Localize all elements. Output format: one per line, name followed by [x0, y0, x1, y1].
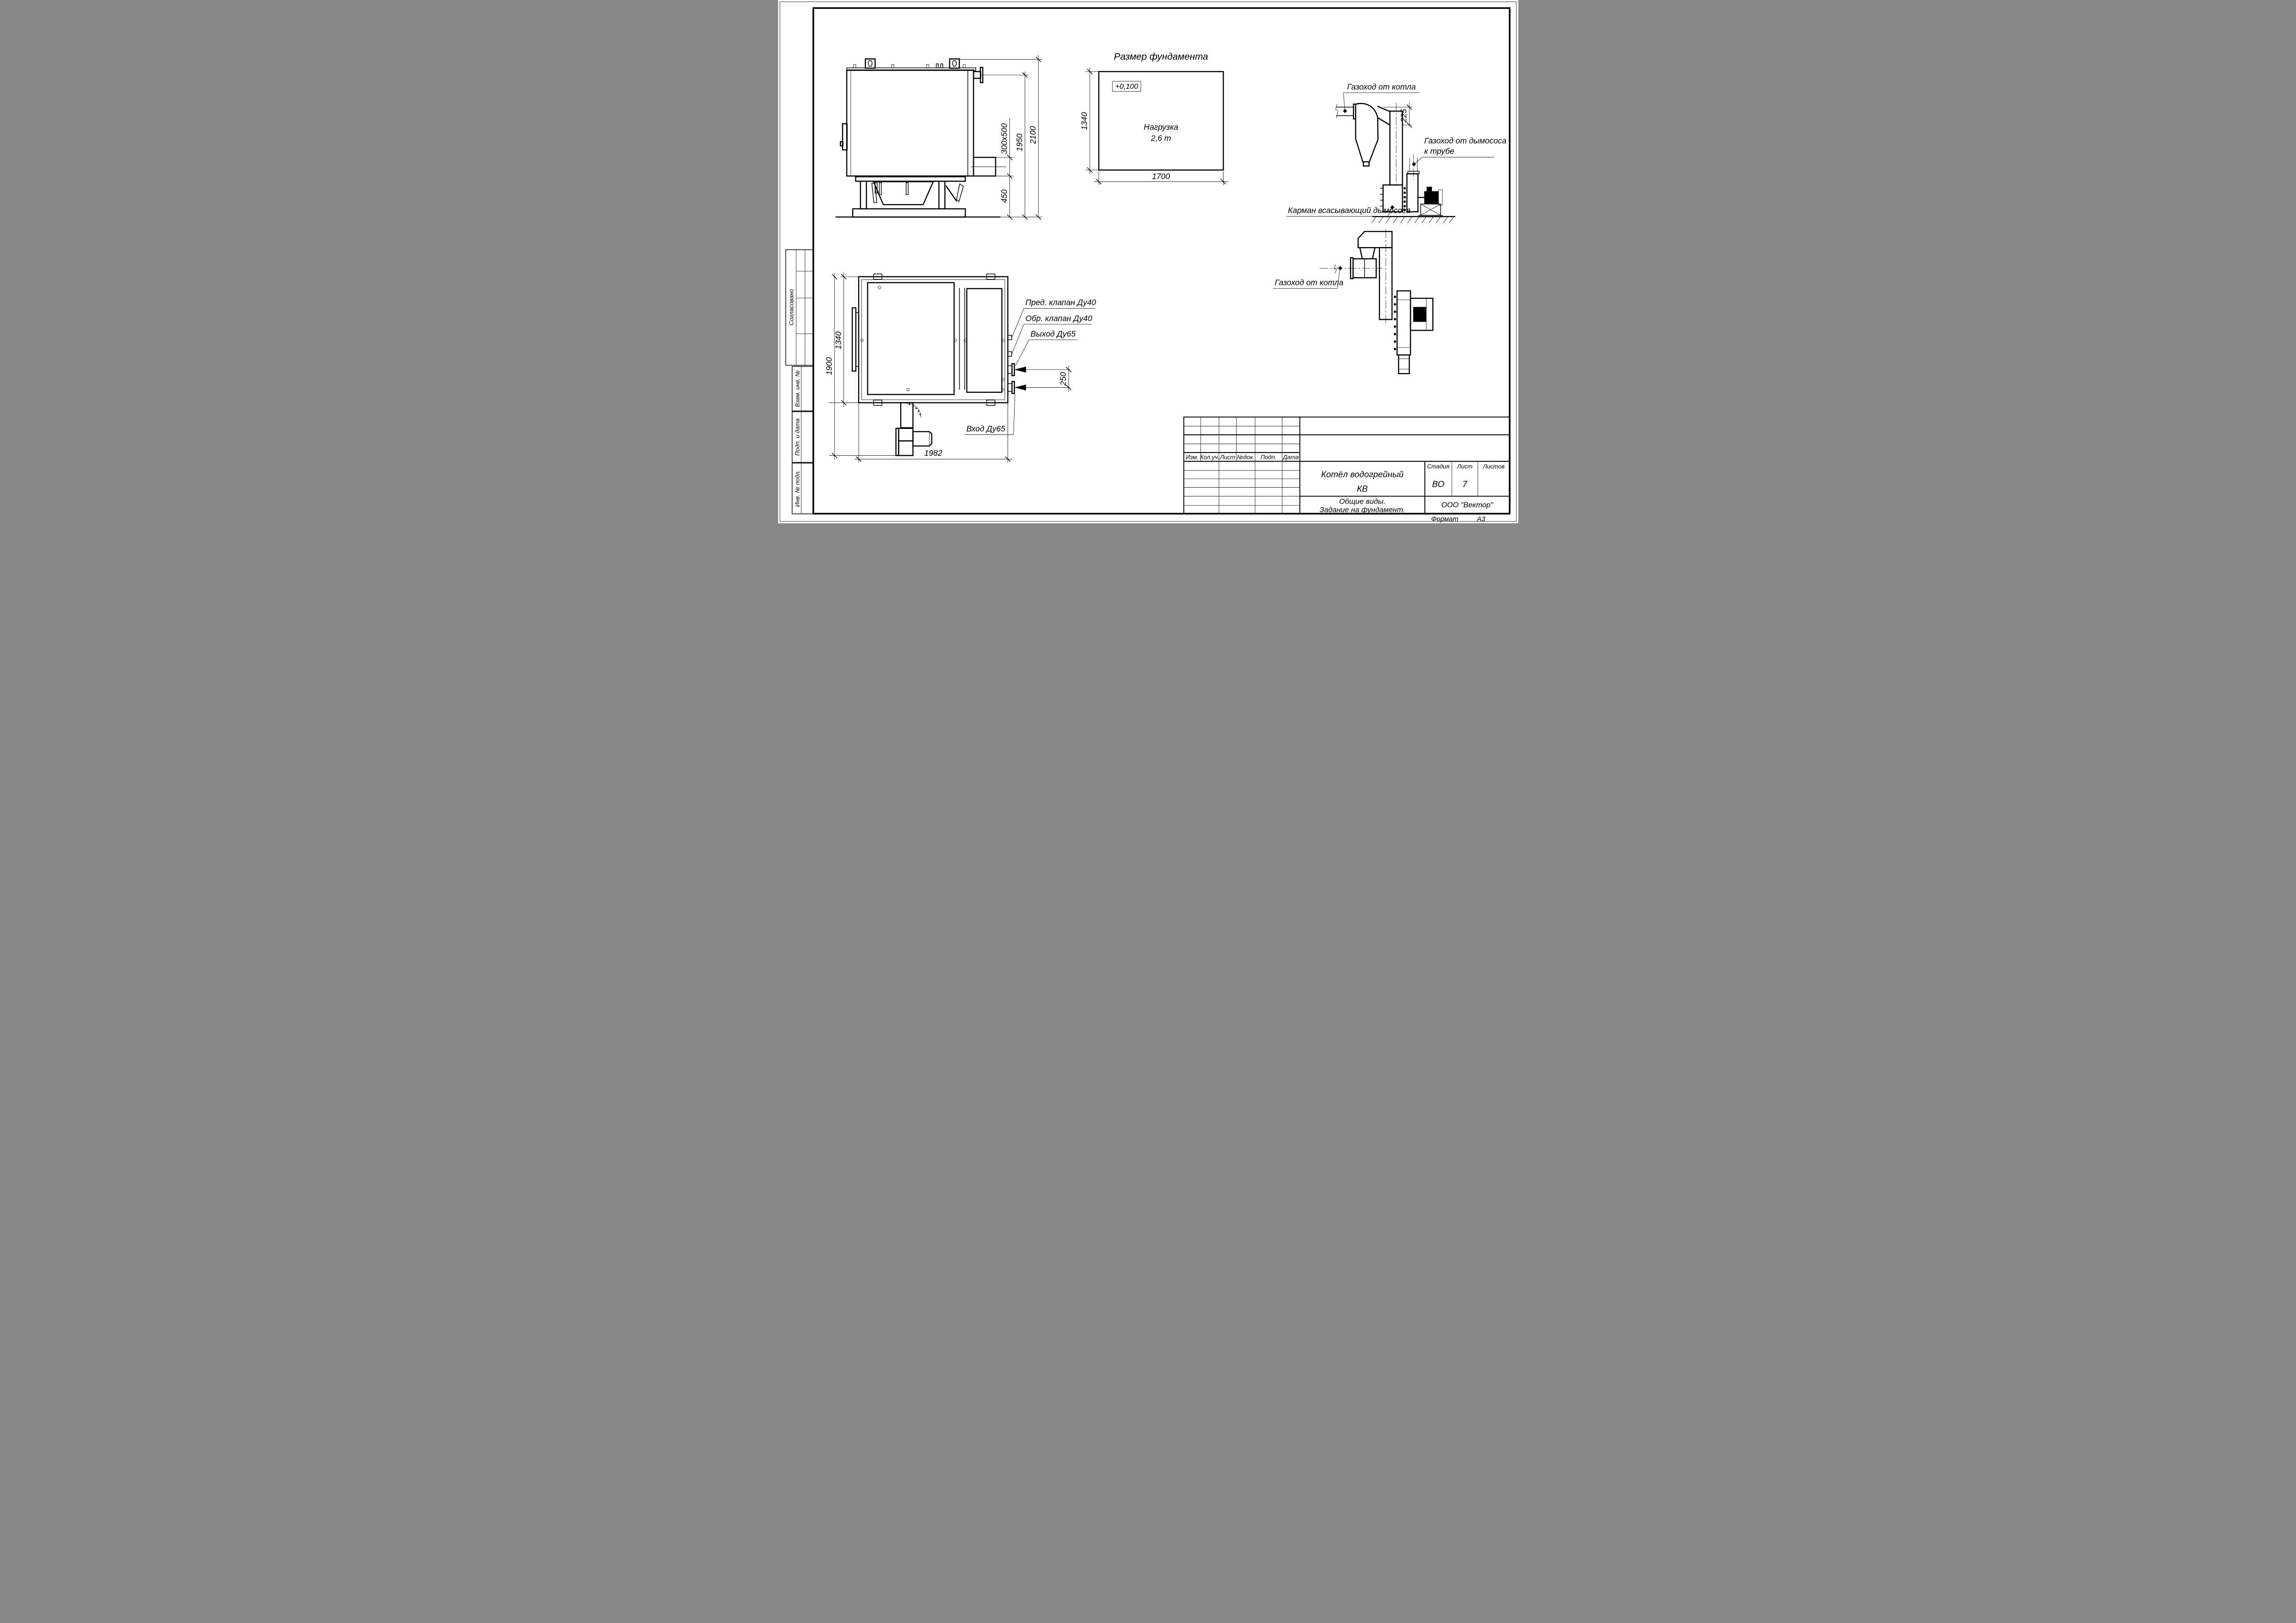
engineering-drawing-canvas: Согласовано Взам. инв. № Подп. и дата Ин… — [778, 0, 1518, 523]
label-flue-from-boiler: Газоход от котла — [1347, 82, 1416, 91]
stamp-podp-label: Подп. и дата — [793, 418, 800, 456]
stamp-inv-label: Инв. № подл. — [793, 470, 800, 507]
tb-doc-title-2: КВ — [1357, 483, 1368, 493]
dim-450: 450 — [999, 189, 1009, 203]
dim-2100: 2100 — [1028, 126, 1037, 144]
format-value: А3 — [1476, 515, 1485, 523]
label-flue-to-chimney-1: Газоход от дымососа — [1424, 136, 1506, 145]
tb-col-koluch: Кол.уч. — [1200, 453, 1219, 460]
tb-col-podp: Подп. — [1260, 453, 1276, 460]
foundation-load-line2: 2,6 т — [1150, 134, 1171, 143]
dim-1950: 1950 — [1015, 133, 1024, 151]
tb-sheets-label: Листов — [1482, 463, 1504, 470]
stamp-vzam-label: Взам. инв. № — [793, 370, 800, 407]
label-flue-plan-from-boiler: Газоход от котла — [1275, 278, 1343, 287]
dim-225: 225 — [1399, 109, 1408, 123]
dim-1700: 1700 — [1152, 172, 1170, 181]
label-outlet: Выход Ду65 — [1030, 329, 1076, 338]
drawing-sheet: Согласовано Взам. инв. № Подп. и дата Ин… — [778, 0, 1518, 523]
tb-col-list: Лист — [1219, 453, 1235, 460]
format-label: Формат — [1431, 515, 1458, 523]
tb-stage-value: ВО — [1432, 479, 1444, 489]
dim-300x500: 300х500 — [999, 123, 1009, 154]
label-flue-to-chimney-2: к трубе — [1424, 147, 1454, 156]
dim-250: 250 — [1058, 372, 1068, 386]
dim-1982: 1982 — [924, 448, 942, 458]
label-inlet: Вход Ду65 — [966, 424, 1005, 433]
tb-sheet-value: 7 — [1462, 479, 1467, 489]
tb-col-ndok: №док. — [1237, 453, 1254, 460]
sheet-background — [778, 0, 1518, 523]
dim-1340-plan: 1340 — [834, 331, 843, 349]
tb-subtitle-1: Общие виды. — [1339, 497, 1385, 506]
tb-sheet-label: Лист — [1456, 463, 1472, 470]
tb-subtitle-2: Задание на фундамент. — [1319, 506, 1405, 514]
tb-company: ООО "Вектор" — [1441, 501, 1493, 509]
tb-col-izm: Изм. — [1186, 453, 1198, 460]
tb-stage-label: Стадия — [1427, 463, 1449, 470]
tb-col-data: Дата — [1282, 453, 1299, 460]
tb-doc-title-1: Котёл водогрейный — [1321, 470, 1404, 479]
label-safety-valve: Пред. клапан Ду40 — [1025, 298, 1096, 307]
dim-1340-foundation: 1340 — [1079, 112, 1089, 130]
stamp-agreed-label: Согласовано — [787, 289, 794, 326]
label-check-valve: Обр. клапан Ду40 — [1025, 314, 1092, 323]
dim-1900: 1900 — [824, 357, 834, 375]
foundation-elevation-mark: +0,100 — [1115, 82, 1138, 91]
foundation-load-line1: Нагрузка — [1144, 122, 1178, 131]
foundation-title: Размер фундамента — [1114, 51, 1208, 62]
